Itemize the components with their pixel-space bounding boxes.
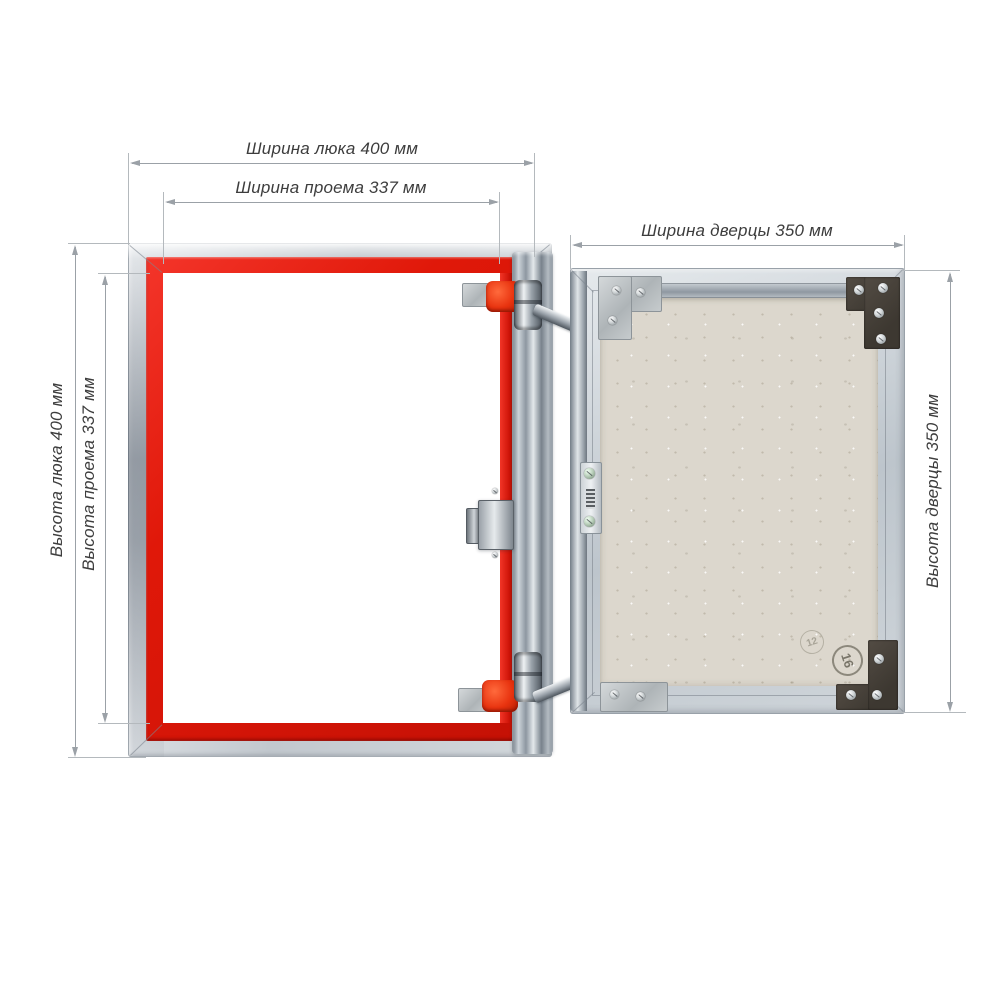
latch-screw bbox=[492, 488, 498, 494]
bracket-screw bbox=[872, 690, 882, 700]
arrowhead-icon bbox=[894, 242, 904, 248]
bracket-screw bbox=[878, 283, 888, 293]
hatch-opening bbox=[163, 273, 500, 723]
dim-hatch-width-label: Ширина люка 400 мм bbox=[246, 139, 418, 159]
latch-screw bbox=[492, 552, 498, 558]
arrowhead-icon bbox=[947, 702, 953, 712]
dimension-line bbox=[132, 163, 532, 164]
bracket-screw bbox=[874, 308, 884, 318]
dim-hatch-height-label: Высота люка 400 мм bbox=[47, 383, 67, 558]
arrowhead-icon bbox=[72, 245, 78, 255]
bracket-screw bbox=[610, 690, 619, 699]
bracket-screw bbox=[846, 690, 856, 700]
dimension-line bbox=[574, 245, 902, 246]
extension-line bbox=[570, 235, 571, 269]
arrowhead-icon bbox=[947, 272, 953, 282]
bracket-screw bbox=[854, 285, 864, 295]
bracket-screw bbox=[612, 286, 621, 295]
strike-plate-label bbox=[586, 489, 595, 509]
extension-line bbox=[534, 153, 535, 257]
arrowhead-icon bbox=[102, 713, 108, 723]
bracket-screw bbox=[636, 288, 645, 297]
bottom-hinge-red-clamp bbox=[482, 680, 518, 712]
extension-line bbox=[163, 192, 164, 264]
dim-opening-width-label: Ширина проема 337 мм bbox=[235, 178, 426, 198]
arrowhead-icon bbox=[524, 160, 534, 166]
dim-door-height-label: Высота дверцы 350 мм bbox=[923, 394, 943, 588]
bracket-screw bbox=[874, 654, 884, 664]
dimension-line bbox=[950, 274, 951, 708]
arrowhead-icon bbox=[72, 747, 78, 757]
extension-line bbox=[903, 270, 960, 271]
bracket-screw bbox=[636, 692, 645, 701]
extension-line bbox=[904, 235, 905, 271]
corner-bracket-bottom-right bbox=[868, 640, 898, 710]
arrowhead-icon bbox=[102, 275, 108, 285]
extension-line bbox=[898, 712, 966, 713]
latch bbox=[478, 500, 514, 550]
extension-line bbox=[499, 192, 500, 264]
dim-opening-height-label: Высота проема 337 мм bbox=[79, 377, 99, 571]
arrowhead-icon bbox=[489, 199, 499, 205]
extension-line bbox=[68, 243, 130, 244]
bracket-screw bbox=[876, 334, 886, 344]
dimension-line bbox=[105, 277, 106, 719]
product-dimension-diagram: 12 16 Ширина люка 400 мм Ширина проема 3… bbox=[0, 0, 1000, 1000]
extension-line bbox=[128, 153, 129, 245]
strike-plate-screw bbox=[584, 468, 595, 479]
dim-door-width-label: Ширина дверцы 350 мм bbox=[641, 221, 833, 241]
arrowhead-icon bbox=[572, 242, 582, 248]
bracket-screw bbox=[608, 316, 617, 325]
strike-plate-screw bbox=[584, 516, 595, 527]
extension-line bbox=[98, 723, 150, 724]
dimension-line bbox=[167, 202, 497, 203]
extension-line bbox=[98, 273, 150, 274]
extension-line bbox=[68, 757, 146, 758]
arrowhead-icon bbox=[130, 160, 140, 166]
arrowhead-icon bbox=[165, 199, 175, 205]
dimension-line bbox=[75, 247, 76, 753]
gypsum-board-panel bbox=[600, 298, 878, 686]
